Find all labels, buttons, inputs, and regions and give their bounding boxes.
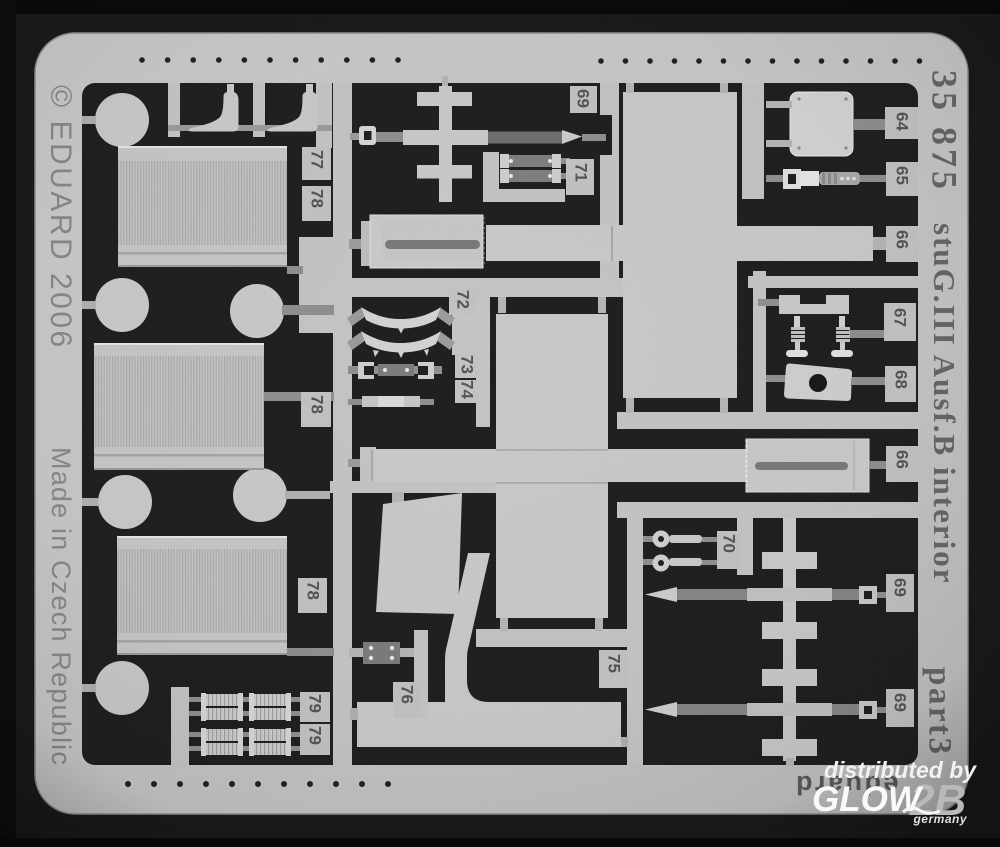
svg-text:germany: germany xyxy=(912,812,967,826)
svg-text:GLOW: GLOW xyxy=(812,780,924,819)
